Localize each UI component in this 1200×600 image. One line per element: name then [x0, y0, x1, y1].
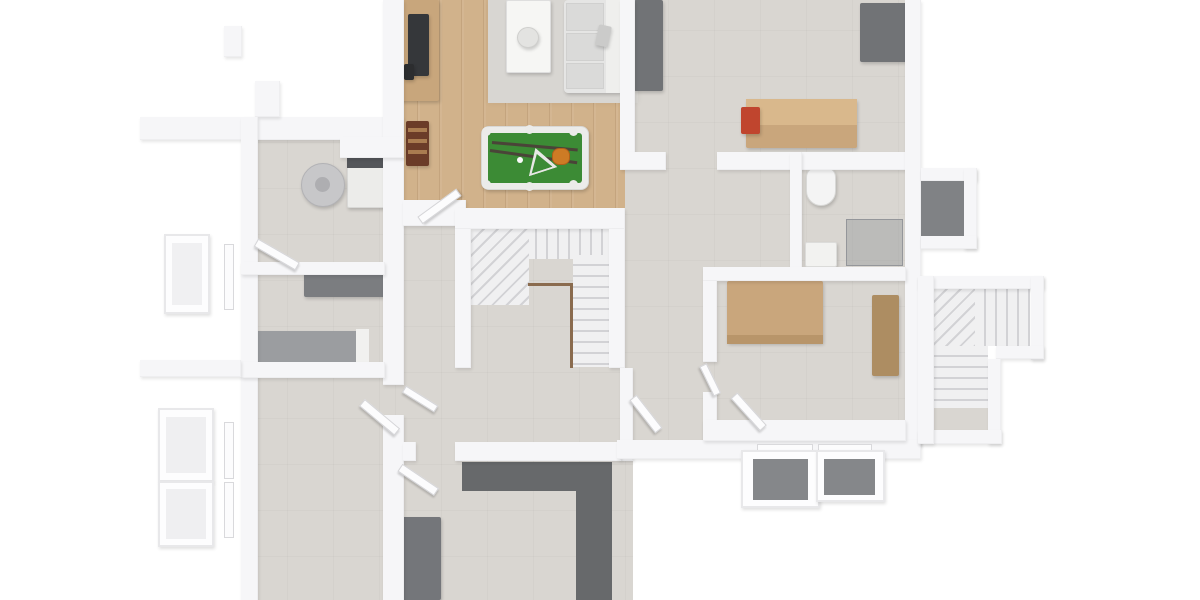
wall-stub-left-mid [140, 360, 241, 377]
dark-counter-right-band [576, 491, 612, 600]
stair-railing-vertical [570, 283, 573, 368]
wall-stub-up [255, 81, 280, 117]
main-stair-winders [471, 229, 529, 305]
pool-pocket-tl [482, 127, 491, 136]
foosball-rod-2 [408, 139, 427, 143]
wall-right-stair-mid [996, 346, 1044, 359]
wall-stairwell-top [455, 208, 625, 229]
right-stair-upper-flight [975, 289, 1030, 346]
workshop-cabinet-right [860, 3, 908, 62]
window-well-left-2-inner [166, 417, 206, 473]
toilet [806, 167, 836, 206]
double-bed [727, 281, 823, 343]
pool-pocket-bl [482, 180, 491, 189]
wall-divider-daybed-room [241, 362, 385, 378]
wall-right-stair-top [918, 276, 1044, 289]
pool-pocket-br [569, 180, 578, 189]
wall-divider-utility [241, 262, 385, 275]
decor-bowl [517, 27, 539, 48]
bench-vise [741, 107, 760, 134]
wall-bedroom-left-upper [703, 281, 717, 362]
pool-pocket-tr [569, 127, 578, 136]
wall-hall-bottom-b [455, 442, 621, 461]
wardrobe [872, 295, 899, 376]
wall-bedroom-top [703, 267, 906, 281]
shower-glass [846, 219, 903, 266]
sofa-cushion-3 [566, 63, 604, 89]
right-stair-winders [934, 289, 976, 346]
right-stair-down-flight [934, 346, 988, 408]
foosball-rod-3 [408, 150, 427, 154]
wall-bedroom-bottom [703, 420, 906, 441]
window-well-bottom-1-inner [753, 459, 808, 500]
window-left-mid [224, 422, 234, 479]
wall-right-stair-left [918, 276, 934, 444]
pool-ball-cluster [552, 148, 570, 165]
main-stair-down-flight [573, 255, 609, 367]
wall-center-left-lower [383, 415, 404, 600]
window-well-left-3-inner [166, 489, 206, 539]
workbench-top [746, 99, 857, 125]
window-left-lower [224, 482, 234, 538]
window-left-upper [224, 244, 234, 310]
stair-railing-horizontal [528, 283, 573, 286]
daybed [245, 331, 359, 364]
cue-ball [517, 157, 523, 163]
foosball-rod-1 [408, 128, 427, 132]
window-well-left-1-inner [172, 243, 202, 305]
wall-pillar-topleft [224, 26, 242, 57]
pool-pocket-bm [525, 182, 534, 191]
wall-annex-bottom [921, 236, 977, 249]
wall-workshop-bottom-right [717, 152, 913, 170]
shower-tray [805, 242, 837, 267]
floor-plan-stage [0, 0, 1200, 600]
annex-shaft-floor [921, 181, 964, 236]
wall-workshop-bottom-left [620, 152, 666, 170]
workshop-cabinet-left [634, 0, 663, 91]
daybed-frame-end [356, 329, 369, 365]
wall-center-left-upper [383, 0, 404, 385]
wall-stairwell-left [455, 229, 471, 368]
wall-stairwell-right [609, 229, 625, 368]
bed-foot-band [727, 335, 823, 344]
window-well-bottom-2-inner [824, 459, 875, 495]
wall-game-workshop-divider [620, 0, 635, 153]
dark-cabinet [402, 517, 441, 600]
water-heater-hub [315, 177, 330, 192]
wall-utility-counter [340, 137, 404, 158]
wall-left-exterior [241, 117, 258, 600]
dark-counter-top-band [462, 462, 612, 491]
pool-pocket-tm [525, 125, 534, 134]
wall-bath-divider [790, 152, 802, 269]
tv-accessory [404, 64, 414, 80]
right-stair-landing [934, 408, 988, 430]
wall-hall-bottom-a [403, 442, 416, 461]
